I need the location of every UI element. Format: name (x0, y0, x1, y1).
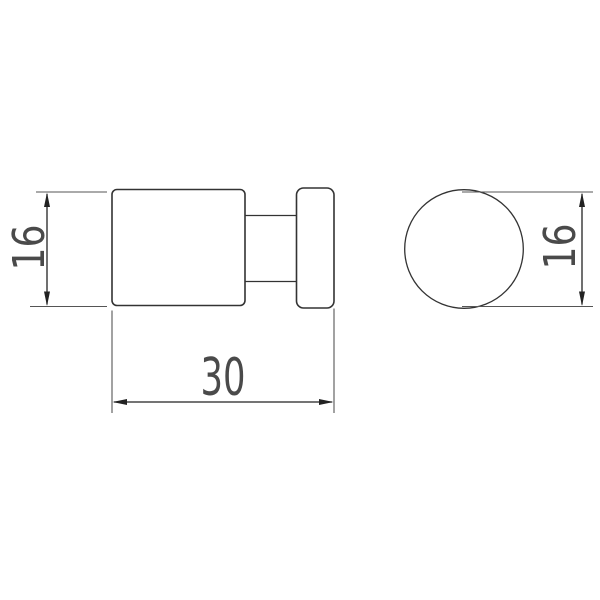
arrowhead-left (113, 399, 128, 405)
hook-flange-outline (297, 188, 335, 308)
dimension-side-height: 16 (4, 192, 107, 307)
dimension-front-diameter: 16 (462, 192, 593, 307)
dimension-value-height: 16 (4, 225, 55, 271)
dimension-value-diameter: 16 (535, 224, 586, 270)
dimension-value-length: 30 (201, 348, 246, 408)
front-view (405, 190, 524, 309)
drawing-canvas: 16 30 16 (0, 0, 600, 600)
technical-drawing: 16 30 16 (0, 0, 600, 600)
arrowhead-right (319, 399, 334, 405)
arrowhead-down (44, 292, 50, 307)
side-view (112, 188, 334, 308)
arrowhead-up (44, 193, 50, 208)
hook-front-circle-outline (405, 190, 524, 309)
arrowhead-down (579, 292, 585, 307)
dimension-side-length: 30 (112, 309, 334, 414)
arrowhead-up (579, 193, 585, 208)
hook-body-outline (112, 190, 245, 306)
